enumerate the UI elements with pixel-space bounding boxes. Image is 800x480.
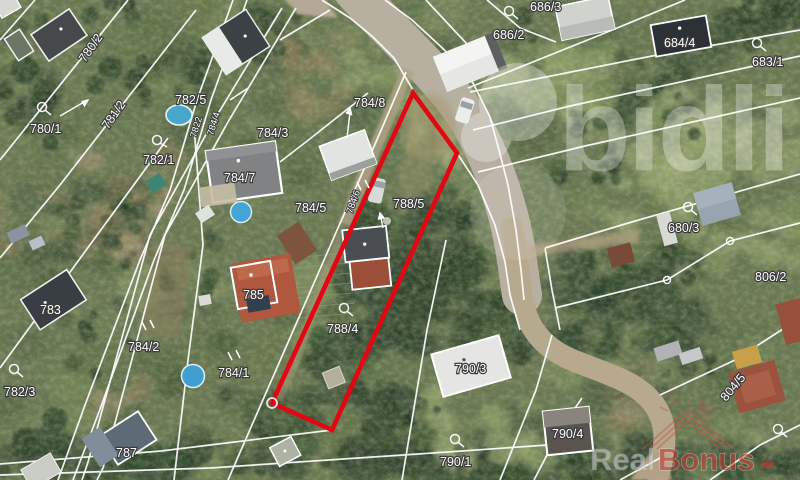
- svg-text:787: 787: [116, 446, 137, 460]
- svg-text:790/4: 790/4: [552, 427, 583, 441]
- svg-text:Bonus: Bonus: [658, 442, 754, 477]
- svg-text:Real: Real: [590, 442, 655, 477]
- svg-text:782/1: 782/1: [143, 153, 174, 167]
- svg-text:780/1: 780/1: [30, 122, 61, 136]
- svg-text:782/5: 782/5: [175, 93, 206, 107]
- svg-text:784/1: 784/1: [218, 366, 249, 380]
- svg-text:790/3: 790/3: [455, 362, 486, 376]
- svg-text:784/5: 784/5: [295, 201, 326, 215]
- svg-text:686/3: 686/3: [530, 0, 561, 14]
- svg-text:784/8: 784/8: [354, 96, 385, 110]
- svg-text:784/3: 784/3: [257, 126, 288, 140]
- svg-text:782/3: 782/3: [4, 385, 35, 399]
- svg-text:680/3: 680/3: [668, 221, 699, 235]
- svg-text:785: 785: [243, 288, 264, 302]
- svg-text:bidli: bidli: [558, 63, 788, 196]
- svg-text:783: 783: [40, 303, 61, 317]
- svg-text:788/5: 788/5: [393, 197, 424, 211]
- svg-text:784/7: 784/7: [224, 171, 255, 185]
- svg-text:790/1: 790/1: [440, 455, 471, 469]
- svg-text:806/2: 806/2: [755, 270, 786, 284]
- svg-text:788/4: 788/4: [327, 322, 358, 336]
- svg-text:686/2: 686/2: [493, 28, 524, 42]
- svg-text:684/4: 684/4: [664, 36, 695, 50]
- svg-text:784/2: 784/2: [128, 340, 159, 354]
